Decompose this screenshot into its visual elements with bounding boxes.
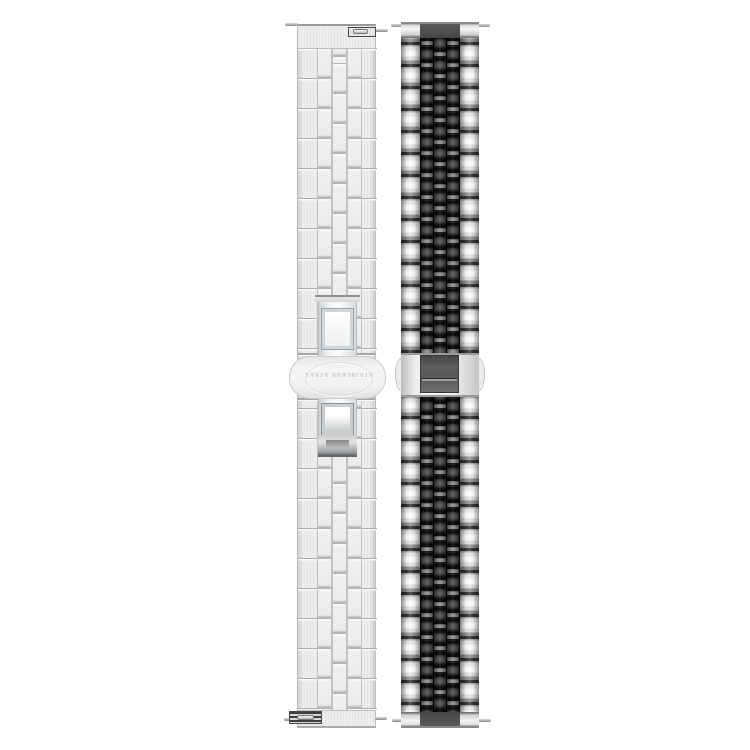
quick-release-slider [297, 715, 314, 720]
clasp-engraving-text: STAINLESS STEEL [290, 371, 387, 377]
clasp-center-bar [420, 355, 459, 393]
clasp-arm-window [322, 404, 353, 435]
product-photo-canvas: STAINLESS STEEL [0, 0, 750, 750]
spring-bar-pin [478, 719, 491, 722]
left-watch-band: STAINLESS STEEL [297, 24, 376, 728]
end-link-dark-center [420, 712, 460, 726]
quick-release-slider [353, 29, 368, 34]
spring-bar-pin [374, 717, 387, 720]
clasp-tip-ledge [326, 440, 349, 448]
right-band-bottom-end-link [401, 712, 479, 728]
butterfly-clasp-lower-arm [315, 399, 360, 457]
butterfly-clasp-cover: STAINLESS STEEL [289, 356, 386, 399]
quick-release-tab [348, 27, 376, 37]
right-band-top-end-link [401, 22, 479, 38]
right-watch-band [401, 22, 479, 728]
clasp-arm-tip [318, 435, 357, 457]
clasp-embossed-oval [305, 362, 373, 396]
spring-bar-pin [375, 29, 388, 32]
end-link-dark-center [420, 24, 460, 38]
clasp-arm-window [322, 309, 353, 349]
spring-bar-pin [285, 23, 298, 26]
fold-over-clasp [401, 353, 479, 397]
clasp-plate-seam [422, 379, 457, 381]
butterfly-clasp-upper-arm [315, 295, 360, 356]
quick-release-tab [289, 711, 322, 724]
clasp-arm-cap [315, 295, 360, 302]
